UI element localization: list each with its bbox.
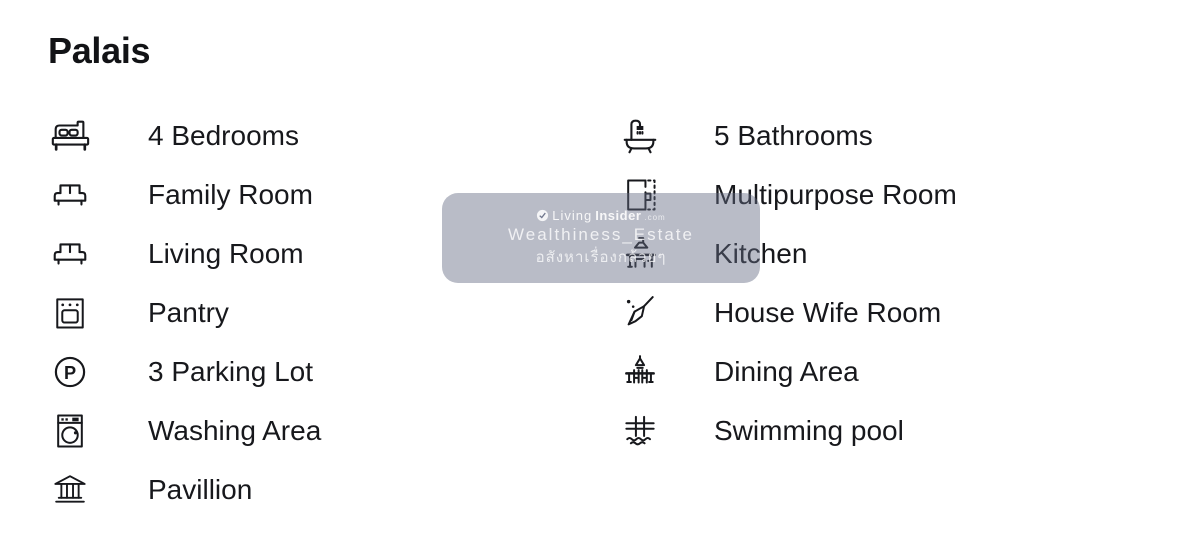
feature-label: Washing Area bbox=[148, 415, 321, 447]
sofa-icon bbox=[48, 232, 92, 276]
sofa-icon bbox=[48, 173, 92, 217]
livinginsider-logo-icon bbox=[536, 209, 549, 222]
feature-row-parking: P 3 Parking Lot bbox=[48, 342, 321, 401]
feature-row-swimming-pool: Swimming pool bbox=[618, 401, 957, 460]
feature-row-bathrooms: 5 Bathrooms bbox=[618, 106, 957, 165]
watermark-brand-suffix: Insider bbox=[595, 208, 641, 223]
dining-icon bbox=[618, 350, 662, 394]
feature-list-right: 5 Bathrooms Multipurpose Room bbox=[618, 106, 957, 460]
feature-label: Family Room bbox=[148, 179, 313, 211]
broom-icon bbox=[618, 291, 662, 335]
page-title: Palais bbox=[48, 30, 150, 72]
amenities-section: Palais 4 Bedrooms bbox=[0, 0, 1200, 547]
feature-label: Swimming pool bbox=[714, 415, 904, 447]
feature-label: Pantry bbox=[148, 297, 229, 329]
feature-list-left: 4 Bedrooms Family Room bbox=[48, 106, 321, 519]
feature-label: 5 Bathrooms bbox=[714, 120, 873, 152]
parking-icon: P bbox=[48, 350, 92, 394]
feature-row-pantry: Pantry bbox=[48, 283, 321, 342]
feature-label: Dining Area bbox=[714, 356, 859, 388]
feature-row-washing-area: Washing Area bbox=[48, 401, 321, 460]
feature-label: House Wife Room bbox=[714, 297, 941, 329]
feature-label: 3 Parking Lot bbox=[148, 356, 313, 388]
pavilion-icon bbox=[48, 468, 92, 512]
watermark-brand-tld: .com bbox=[644, 213, 665, 222]
feature-row-living-room: Living Room bbox=[48, 224, 321, 283]
feature-row-dining: Dining Area bbox=[618, 342, 957, 401]
feature-row-house-wife: House Wife Room bbox=[618, 283, 957, 342]
feature-row-pavillion: Pavillion bbox=[48, 460, 321, 519]
watermark-brand-prefix: Living bbox=[552, 208, 592, 223]
feature-label: 4 Bedrooms bbox=[148, 120, 299, 152]
bathtub-icon bbox=[618, 114, 662, 158]
oven-icon bbox=[48, 291, 92, 335]
feature-row-family-room: Family Room bbox=[48, 165, 321, 224]
feature-label: Pavillion bbox=[148, 474, 252, 506]
washing-machine-icon bbox=[48, 409, 92, 453]
watermark-overlay: LivingInsider.com Wealthiness_Estate อสั… bbox=[442, 193, 760, 283]
bed-icon bbox=[48, 114, 92, 158]
watermark-account-name: Wealthiness_Estate bbox=[508, 225, 694, 245]
watermark-tagline-thai: อสังหาเรื่องกล้วยๆ bbox=[536, 245, 667, 269]
feature-row-bedrooms: 4 Bedrooms bbox=[48, 106, 321, 165]
feature-label: Living Room bbox=[148, 238, 304, 270]
pool-ladder-icon bbox=[618, 409, 662, 453]
watermark-brand-line: LivingInsider.com bbox=[536, 208, 665, 223]
svg-text:P: P bbox=[64, 362, 76, 382]
